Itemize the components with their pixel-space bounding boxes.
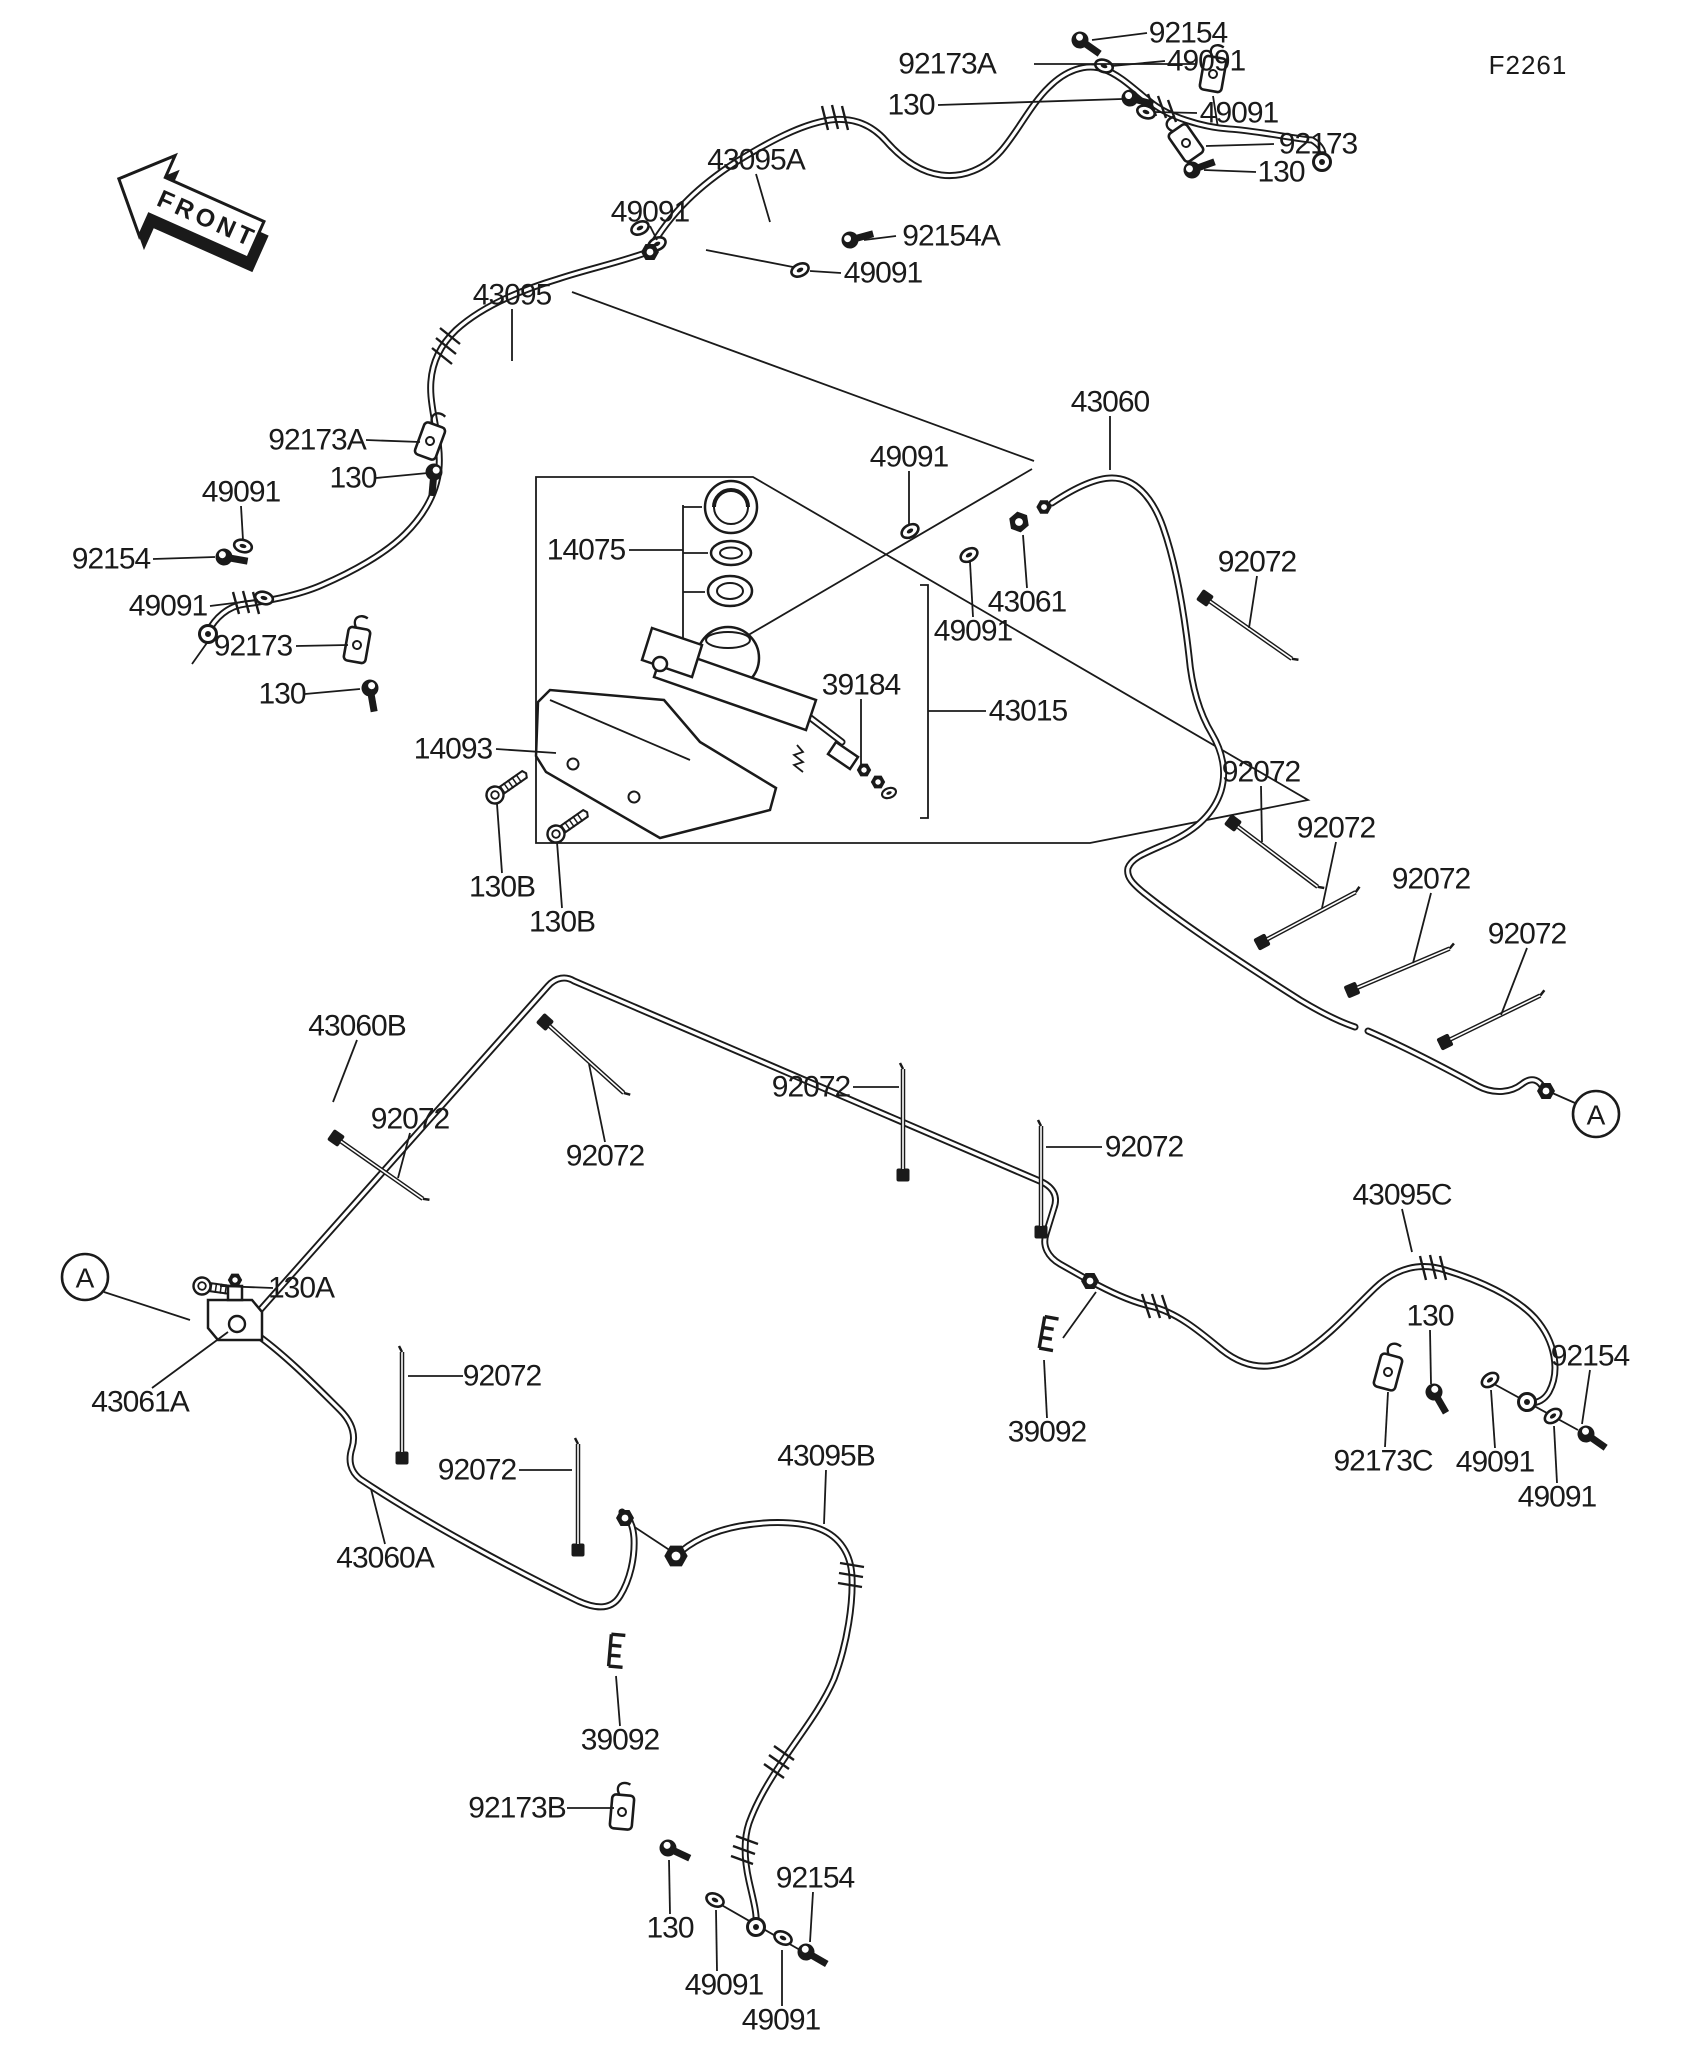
part-callout-92173[interactable]: 92173: [214, 630, 293, 663]
leader-line: [296, 645, 348, 646]
leader-line: [366, 440, 420, 442]
part-callout-39092[interactable]: 39092: [581, 1724, 660, 1757]
part-callout-92072[interactable]: 92072: [1105, 1131, 1184, 1164]
part-callout-92072[interactable]: 92072: [1222, 756, 1301, 789]
part-callout-92173A[interactable]: 92173A: [898, 48, 996, 81]
leader-line: [1322, 842, 1336, 908]
part-callout-49091[interactable]: 49091: [202, 476, 281, 509]
part-callout-43095B[interactable]: 43095B: [777, 1440, 874, 1473]
return-spring: [794, 745, 803, 772]
figure-code: F2261: [1489, 50, 1568, 80]
pipe-43060-tail[interactable]: [1368, 1031, 1544, 1092]
leader-line: [104, 1292, 190, 1320]
part-callout-43060[interactable]: 43060: [1071, 386, 1150, 419]
part-callout-49091[interactable]: 49091: [742, 2004, 821, 2037]
part-callout-92072[interactable]: 92072: [1392, 863, 1471, 896]
leader-line: [1204, 170, 1256, 172]
part-callout-43060B[interactable]: 43060B: [308, 1010, 405, 1043]
part-callout-49091[interactable]: 49091: [1518, 1481, 1597, 1514]
cylinder-flange: [642, 628, 702, 677]
part-callout-130B[interactable]: 130B: [469, 871, 535, 904]
part-callout-39092[interactable]: 39092: [1008, 1416, 1087, 1449]
leader-line: [1582, 1370, 1590, 1424]
connector-A-0[interactable]: A: [1573, 1091, 1619, 1137]
part-callout-43061A[interactable]: 43061A: [91, 1386, 189, 1419]
front-arrow: FRONT: [96, 139, 282, 295]
part-callout-92072[interactable]: 92072: [1218, 546, 1297, 579]
part-callout-43060A[interactable]: 43060A: [336, 1542, 434, 1575]
part-callout-130[interactable]: 130: [1406, 1300, 1453, 1333]
leader-line: [1023, 535, 1027, 588]
leader-line: [616, 1676, 620, 1726]
bracket-43015: [920, 585, 928, 818]
part-callout-92072[interactable]: 92072: [371, 1103, 450, 1136]
part-callout-92173A[interactable]: 92173A: [268, 424, 366, 457]
leader-line: [152, 1332, 228, 1388]
leader-line: [557, 842, 562, 908]
leader-line: [1092, 33, 1147, 40]
part-callout-92173B[interactable]: 92173B: [468, 1792, 565, 1825]
part-callout-39184[interactable]: 39184: [822, 669, 901, 702]
leader-line: [1154, 112, 1197, 113]
guard-plate-14093[interactable]: [536, 690, 776, 838]
cap-gasket: [711, 541, 751, 565]
part-callout-92154[interactable]: 92154: [72, 543, 151, 576]
leader-line: [1249, 576, 1257, 628]
part-callout-92154A[interactable]: 92154A: [902, 220, 1000, 253]
part-callout-14075[interactable]: 14075: [547, 534, 626, 567]
connector-label: A: [1587, 1100, 1606, 1131]
part-callout-92072[interactable]: 92072: [772, 1071, 851, 1104]
part-callout-130[interactable]: 130: [329, 462, 376, 495]
pipe-43060[interactable]: [1052, 478, 1355, 1027]
leader-line: [1044, 1360, 1047, 1418]
part-callout-49091[interactable]: 49091: [870, 441, 949, 474]
leader-line: [970, 562, 973, 617]
part-callout-43015[interactable]: 43015: [989, 695, 1068, 728]
connector-label: A: [76, 1263, 95, 1294]
part-callout-49091[interactable]: 49091: [611, 196, 690, 229]
part-callout-92072[interactable]: 92072: [1488, 918, 1567, 951]
leader-line: [497, 804, 502, 873]
part-callout-49091[interactable]: 49091: [1167, 45, 1246, 78]
leader-line: [669, 1860, 670, 1914]
leader-line: [938, 99, 1122, 105]
part-callout-92154[interactable]: 92154: [1551, 1340, 1630, 1373]
brake-piping-schematic: FRONT F2261 921544909192173A130490919217…: [0, 0, 1700, 2050]
part-callout-43095A[interactable]: 43095A: [707, 144, 805, 177]
leader-line: [1413, 893, 1431, 963]
leader-line: [1261, 786, 1262, 842]
bracket-14075: [683, 505, 708, 640]
run-line-upper: [572, 292, 1034, 461]
part-callout-43095[interactable]: 43095: [473, 279, 552, 312]
leader-line: [824, 1470, 826, 1524]
leader-line: [1402, 1209, 1412, 1252]
leader-line: [810, 271, 841, 273]
part-callout-130[interactable]: 130: [258, 678, 305, 711]
connector-A-1[interactable]: A: [62, 1254, 108, 1300]
part-callout-43095C[interactable]: 43095C: [1352, 1179, 1451, 1212]
parts-diagram-page: FRONT F2261 921544909192173A130490919217…: [0, 0, 1700, 2050]
part-callout-49091[interactable]: 49091: [1200, 97, 1279, 130]
part-callout-92072[interactable]: 92072: [463, 1360, 542, 1393]
leader-line: [376, 473, 428, 478]
part-callout-49091[interactable]: 49091: [1456, 1446, 1535, 1479]
part-callout-130A[interactable]: 130A: [268, 1272, 335, 1305]
leader-line: [716, 1910, 717, 1971]
leader-line: [241, 506, 243, 540]
part-callout-130B[interactable]: 130B: [529, 906, 595, 939]
part-callout-92072[interactable]: 92072: [438, 1454, 517, 1487]
push-rod: [808, 716, 842, 742]
leader-line: [756, 174, 770, 222]
cable-ties: [327, 589, 1549, 1557]
leader-line: [1491, 1390, 1495, 1448]
part-callout-92173C[interactable]: 92173C: [1333, 1445, 1432, 1478]
leader-line: [153, 557, 215, 559]
diaphragm: [708, 576, 752, 606]
fasteners: [192, 28, 1610, 1971]
part-callout-49091[interactable]: 49091: [934, 615, 1013, 648]
rod-clevis: [828, 742, 858, 769]
part-callout-130[interactable]: 130: [646, 1912, 693, 1945]
leader-line: [810, 1892, 813, 1942]
part-callout-49091[interactable]: 49091: [129, 590, 208, 623]
part-callout-92154[interactable]: 92154: [776, 1862, 855, 1895]
leader-line: [1430, 1330, 1431, 1384]
part-callout-49091[interactable]: 49091: [685, 1969, 764, 2002]
part-callouts: 921544909192173A130490919217313043095A49…: [72, 17, 1630, 2037]
leader-line: [305, 689, 360, 694]
part-callout-130[interactable]: 130: [1257, 156, 1304, 189]
leader-line: [333, 1040, 357, 1102]
part-callout-92072[interactable]: 92072: [1297, 812, 1376, 845]
leader-line: [1550, 1092, 1575, 1103]
leader-line: [1385, 1392, 1388, 1447]
leader-line: [1554, 1426, 1557, 1483]
leader-line: [1206, 144, 1274, 146]
part-callout-130[interactable]: 130: [887, 89, 934, 122]
part-callout-92072[interactable]: 92072: [566, 1140, 645, 1173]
part-callout-49091[interactable]: 49091: [844, 257, 923, 290]
part-callout-14093[interactable]: 14093: [414, 733, 493, 766]
